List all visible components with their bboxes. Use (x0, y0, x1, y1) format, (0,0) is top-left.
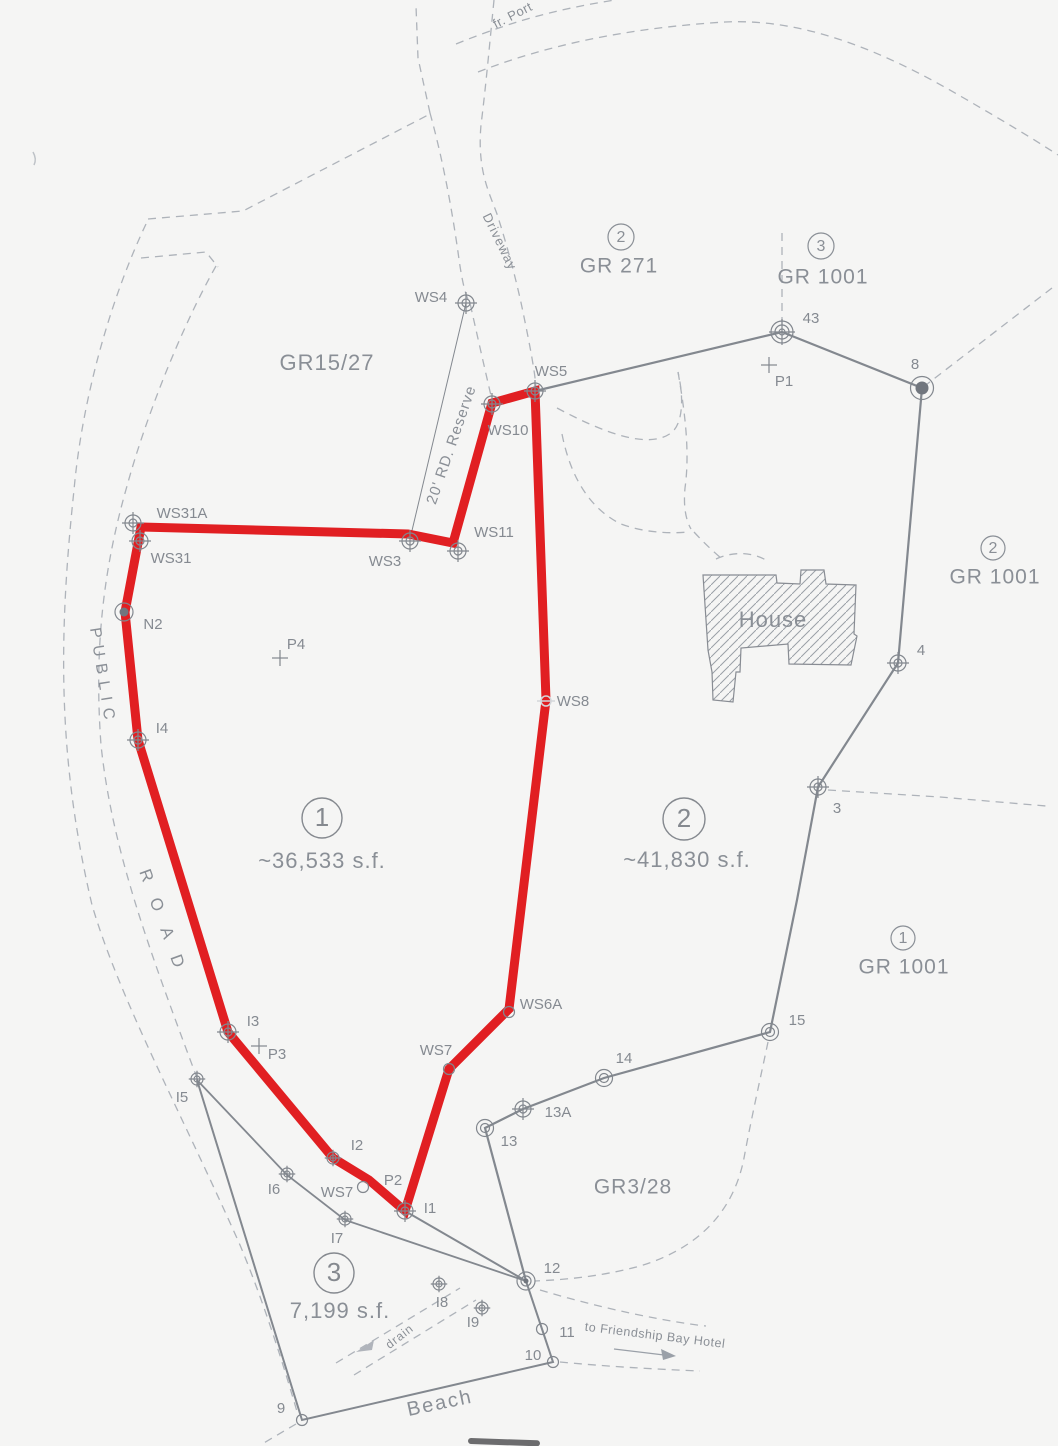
point-label: WS11 (474, 524, 514, 541)
grant-badge-number: 3 (817, 238, 826, 255)
survey-point-i6: I6 (268, 1166, 296, 1198)
parcel-badge-1: 1~36,533 s.f. (258, 798, 386, 873)
survey-point-3: 3 (807, 776, 841, 817)
grant-label-group: GR15/27 (279, 350, 374, 375)
beach-label: Beach (405, 1386, 475, 1421)
house-driveway-loop-3 (562, 434, 688, 533)
point-label: 12 (544, 1260, 561, 1277)
point-label: 14 (616, 1050, 633, 1067)
grant-badge-number: 1 (899, 930, 908, 947)
grant-label: GR 1001 (949, 566, 1040, 589)
point-label: N2 (143, 616, 162, 633)
grant-badge-number: 2 (989, 540, 998, 557)
point-label: I3 (247, 1013, 260, 1030)
point-label: 13A (545, 1104, 572, 1121)
survey-point-8: 8 (911, 356, 934, 400)
point-marker (358, 1182, 369, 1193)
point-label: 9 (277, 1400, 285, 1417)
road-fork-upper (148, 114, 430, 219)
survey-point-4: 4 (887, 642, 925, 674)
point-label: 10 (525, 1347, 542, 1364)
point-label: 3 (833, 800, 841, 817)
parcel3-boundary (197, 1080, 553, 1420)
point-label: I2 (351, 1137, 364, 1154)
house-driveway-loop-5 (716, 554, 769, 562)
point-label: P4 (287, 636, 305, 653)
road-fork-lower (141, 252, 218, 267)
point-label: I8 (436, 1294, 449, 1311)
hotel-path-upper (540, 1290, 706, 1326)
point-label: WS7 (420, 1042, 453, 1059)
point-label: I5 (176, 1089, 189, 1106)
public-road-label-1: PUBLIC (86, 626, 118, 727)
parcel-area: ~41,830 s.f. (623, 847, 751, 872)
point-label: 43 (803, 310, 820, 327)
survey-map-canvas: WS4WS5WS10WS11WS3WS31AWS31N2P4I4I3P3I5I6… (0, 0, 1058, 1446)
grant-label: GR3/28 (594, 1176, 672, 1199)
map-labels-layer: GR15/272GR 2713GR 10012GR 10011GR 1001GR… (86, 0, 1040, 1421)
parcel-badge-2: 2~41,830 s.f. (623, 798, 751, 872)
survey-point-i8: I8 (431, 1276, 449, 1311)
house-label: House (739, 607, 808, 632)
drain-arrow-head (356, 1340, 374, 1352)
drain-label: drain (383, 1321, 417, 1352)
survey-plan-map: WS4WS5WS10WS11WS3WS31AWS31N2P4I4I3P3I5I6… (0, 0, 1058, 1446)
point-label: WS8 (557, 693, 590, 710)
grant-label: GR 1001 (777, 266, 868, 289)
point-label: I7 (331, 1230, 344, 1247)
grant-label-group: 2GR 1001 (949, 536, 1040, 589)
point-marker (916, 382, 929, 395)
boundary-dashed-to-8 (922, 288, 1052, 388)
parcel-badge-3: 37,199 s.f. (290, 1253, 391, 1323)
survey-point-p2: P2 (384, 1172, 402, 1189)
survey-point-i5: I5 (176, 1071, 206, 1106)
grant-label: GR15/27 (279, 350, 374, 375)
point-label: WS5 (535, 363, 568, 380)
point-label: I4 (156, 720, 169, 737)
point-label: P1 (775, 373, 793, 390)
survey-point-9: 9 (277, 1400, 308, 1426)
survey-point-ws7: WS7 (321, 1182, 369, 1201)
survey-point-i9: I9 (467, 1300, 491, 1331)
parcel-number: 1 (315, 802, 329, 832)
public-road-outer-edge (64, 224, 298, 1415)
parcel2-boundary (485, 332, 922, 1281)
beach-path-from-9 (262, 1424, 296, 1444)
parcel-number: 3 (327, 1257, 341, 1287)
point-label: I1 (424, 1200, 437, 1217)
scan-mark (33, 152, 35, 165)
driveway-edge (480, 0, 536, 388)
survey-point-15: 15 (762, 1012, 806, 1041)
grant-label: GR 271 (580, 255, 658, 278)
point-label: 4 (917, 642, 925, 659)
survey-point-43: 43 (769, 310, 819, 345)
point-label: WS3 (369, 553, 402, 570)
point-label: 15 (789, 1012, 806, 1029)
hotel-path-lower (560, 1362, 700, 1371)
driveway-label: Driveway (480, 211, 520, 273)
point-label: P2 (384, 1172, 402, 1189)
point-label: I9 (467, 1314, 480, 1331)
parcel-number: 2 (677, 803, 691, 833)
survey-point-i7: I7 (331, 1211, 354, 1247)
grant-label: GR 1001 (858, 956, 949, 979)
point-marker (524, 1279, 529, 1284)
scan-edge-artifact (468, 1438, 540, 1446)
survey-point-p1: P1 (761, 357, 793, 390)
arrows (356, 1340, 676, 1360)
point-label: 11 (559, 1324, 575, 1341)
house-driveway-loop-4 (694, 532, 722, 559)
from-port-label: fr. Port (490, 0, 534, 31)
hotel-route-label: to Friendship Bay Hotel (584, 1320, 726, 1351)
point-label: I6 (268, 1181, 281, 1198)
point-label: WS7 (321, 1184, 354, 1201)
road-apex-north (416, 6, 430, 113)
port-road-upper-edge (456, 0, 615, 44)
grant-label-group: GR3/28 (594, 1176, 672, 1199)
survey-point-14: 14 (596, 1050, 633, 1087)
point-label: WS31 (151, 550, 192, 567)
house-driveway-loop-2 (678, 372, 691, 529)
point-label: WS31A (157, 505, 208, 522)
point-label: 8 (911, 356, 919, 373)
grant-badge-number: 2 (617, 229, 626, 246)
port-road-lower-edge (478, 22, 1058, 155)
parcel-area: 7,199 s.f. (290, 1298, 391, 1323)
survey-point-p4: P4 (272, 636, 305, 666)
roads-dashed (64, 0, 1058, 1444)
path-15-to-12 (535, 1042, 768, 1281)
point-label: P3 (268, 1046, 286, 1063)
point-label: WS6A (520, 996, 563, 1013)
survey-point-13: 13 (477, 1120, 518, 1150)
grant-label-group: 2GR 271 (580, 224, 658, 278)
point-label: 13 (501, 1133, 518, 1150)
reserve-east-edge (430, 113, 492, 400)
grant-label-group: 1GR 1001 (858, 926, 949, 979)
grant-label-group: 3GR 1001 (777, 233, 868, 289)
point-label: WS10 (488, 422, 529, 439)
survey-point-ws4: WS4 (415, 289, 477, 314)
parcel-area: ~36,533 s.f. (258, 848, 386, 873)
boundary-dashed-from-3 (828, 790, 1046, 806)
point-marker (120, 608, 129, 617)
hotel-arrow-head (661, 1349, 676, 1360)
house-footprint (703, 570, 857, 702)
point-label: WS4 (415, 289, 448, 306)
hotel-arrow-shaft (614, 1349, 664, 1355)
public-road-inner-edge (99, 266, 216, 1078)
